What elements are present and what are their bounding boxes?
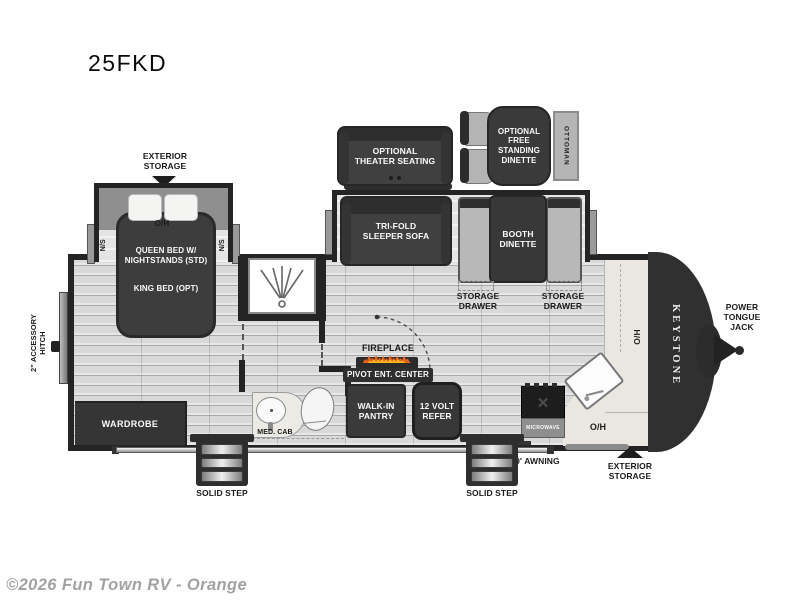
exterior-storage-rear-label: EXTERIOR STORAGE xyxy=(125,151,205,171)
walk-in-pantry: WALK-IN PANTRY xyxy=(346,384,406,438)
step-tread xyxy=(471,458,513,469)
twelve-volt-refer: 12 VOLT REFER xyxy=(412,382,462,440)
nightstand-right-label: N/S xyxy=(219,229,227,261)
sink-icon xyxy=(256,397,286,424)
bath-dashed-line xyxy=(252,438,344,439)
sofa-back xyxy=(339,128,451,141)
pillow-icon xyxy=(164,194,198,221)
bath-wall xyxy=(319,321,325,343)
booth-dinette-table: BOOTH DINETTE xyxy=(489,195,547,283)
step-tread xyxy=(471,471,513,482)
sofa-arm-right xyxy=(441,132,451,184)
drain-icon xyxy=(270,409,273,412)
toilet-seat-line xyxy=(303,421,326,424)
bench-back xyxy=(460,199,492,208)
accessory-hitch-icon xyxy=(59,292,68,384)
pivot-ent-center-label: PIVOT ENT. CENTER xyxy=(347,370,429,380)
dinette-chair-back xyxy=(460,148,469,183)
page-title: 25FKD xyxy=(88,50,167,77)
accessory-hitch-label: 2" ACCESSORY HITCH xyxy=(29,297,47,389)
solid-step-rear-label: SOLID STEP xyxy=(192,488,252,498)
bed xyxy=(116,212,216,338)
pivot-ent-center-bar: PIVOT ENT. CENTER xyxy=(343,368,433,382)
overhead-front-label: O/H xyxy=(578,422,618,433)
free-standing-dinette-label: OPTIONAL FREE STANDING DINETTE xyxy=(498,127,540,165)
sofa-arm-left xyxy=(339,132,349,184)
wardrobe-label: WARDROBE xyxy=(102,419,159,430)
bedroom-overhead-label: O/H xyxy=(142,219,182,229)
shower-pan xyxy=(248,258,316,314)
shower-threshold xyxy=(238,314,326,321)
step-tread xyxy=(201,444,243,455)
bath-wall xyxy=(239,360,245,392)
copyright-text: ©2026 Fun Town RV - Orange xyxy=(6,576,247,595)
power-tongue-jack-label: POWER TONGUE JACK xyxy=(710,302,774,333)
awning-end-cap xyxy=(547,446,554,454)
sofa-arm-right xyxy=(441,203,450,264)
up-arrow-icon xyxy=(617,447,643,458)
stove-knob-icon xyxy=(543,383,548,387)
keystone-brand-label: KEYSTONE xyxy=(670,304,681,386)
exterior-storage-front-label: EXTERIOR STORAGE xyxy=(597,461,663,481)
solid-step-front-icon xyxy=(466,440,518,486)
cupholder-icon xyxy=(389,176,393,180)
wardrobe: WARDROBE xyxy=(75,401,187,445)
shower-wall xyxy=(238,256,248,320)
storage-drawer-outline xyxy=(458,281,494,291)
sofa-back xyxy=(342,198,450,214)
optional-dinette-table: OPTIONAL FREE STANDING DINETTE xyxy=(487,106,551,186)
faucet-icon xyxy=(586,390,604,396)
microwave-label: MICROWAVE xyxy=(526,425,560,431)
dinette-bench xyxy=(546,197,582,283)
med-cab-label: MED. CAB xyxy=(248,429,302,437)
sofa-arm-left xyxy=(342,203,351,264)
nightstand-left-label: N/S xyxy=(100,229,108,261)
stove-icon: ✕ xyxy=(521,386,565,420)
storage-drawer-left-label: STORAGE DRAWER xyxy=(446,291,510,311)
pillow-icon xyxy=(128,194,162,221)
pocket-door-track xyxy=(321,344,323,366)
bed-label: QUEEN BED W/ NIGHTSTANDS (STD) xyxy=(118,246,214,265)
floorplan-canvas: 25FKD EXTERIOR STORAGE OPTIONAL THEATER … xyxy=(0,0,800,600)
shower-spray-icon xyxy=(250,260,314,312)
storage-drawer-right-label: STORAGE DRAWER xyxy=(531,291,595,311)
cupholder-icon xyxy=(397,176,401,180)
bench-back xyxy=(548,199,580,208)
living-slide-rail xyxy=(589,210,597,255)
accessory-hitch-icon xyxy=(51,341,60,352)
pocket-door-track xyxy=(242,324,244,360)
stove-knob-icon xyxy=(525,383,530,387)
burner-icon: ✕ xyxy=(537,394,550,412)
microwave: MICROWAVE xyxy=(521,418,565,438)
solid-step-rear-icon xyxy=(196,440,248,486)
refer-label: 12 VOLT REFER xyxy=(420,401,455,421)
bed-option-label: KING BED (OPT) xyxy=(118,284,214,294)
optional-theater-seating: OPTIONAL THEATER SEATING xyxy=(337,126,453,186)
step-tread xyxy=(201,458,243,469)
tongue-jack-icon xyxy=(735,346,744,355)
faucet-icon xyxy=(583,395,590,402)
solid-step-front-label: SOLID STEP xyxy=(462,488,522,498)
sofa-label: TRI-FOLD SLEEPER SOFA xyxy=(363,221,429,241)
storage-drawer-outline xyxy=(546,281,582,291)
counter-dashed-line xyxy=(620,264,621,352)
ottoman: OTTOMAN xyxy=(553,111,579,181)
booth-dinette-label: BOOTH DINETTE xyxy=(499,229,536,249)
ottoman-label: OTTOMAN xyxy=(563,126,570,166)
theater-seating-label: OPTIONAL THEATER SEATING xyxy=(355,146,436,166)
flame-icon xyxy=(361,350,413,364)
step-tread xyxy=(201,471,243,482)
walk-in-pantry-label: WALK-IN PANTRY xyxy=(357,401,394,421)
shower-wall xyxy=(316,256,326,320)
dinette-chair-back xyxy=(460,111,469,145)
step-tread xyxy=(471,444,513,455)
tri-fold-sleeper-sofa: TRI-FOLD SLEEPER SOFA xyxy=(340,196,452,266)
overhead-counter-label: O/H xyxy=(632,317,646,357)
stove-knob-icon xyxy=(552,383,557,387)
stove-knob-icon xyxy=(534,383,539,387)
